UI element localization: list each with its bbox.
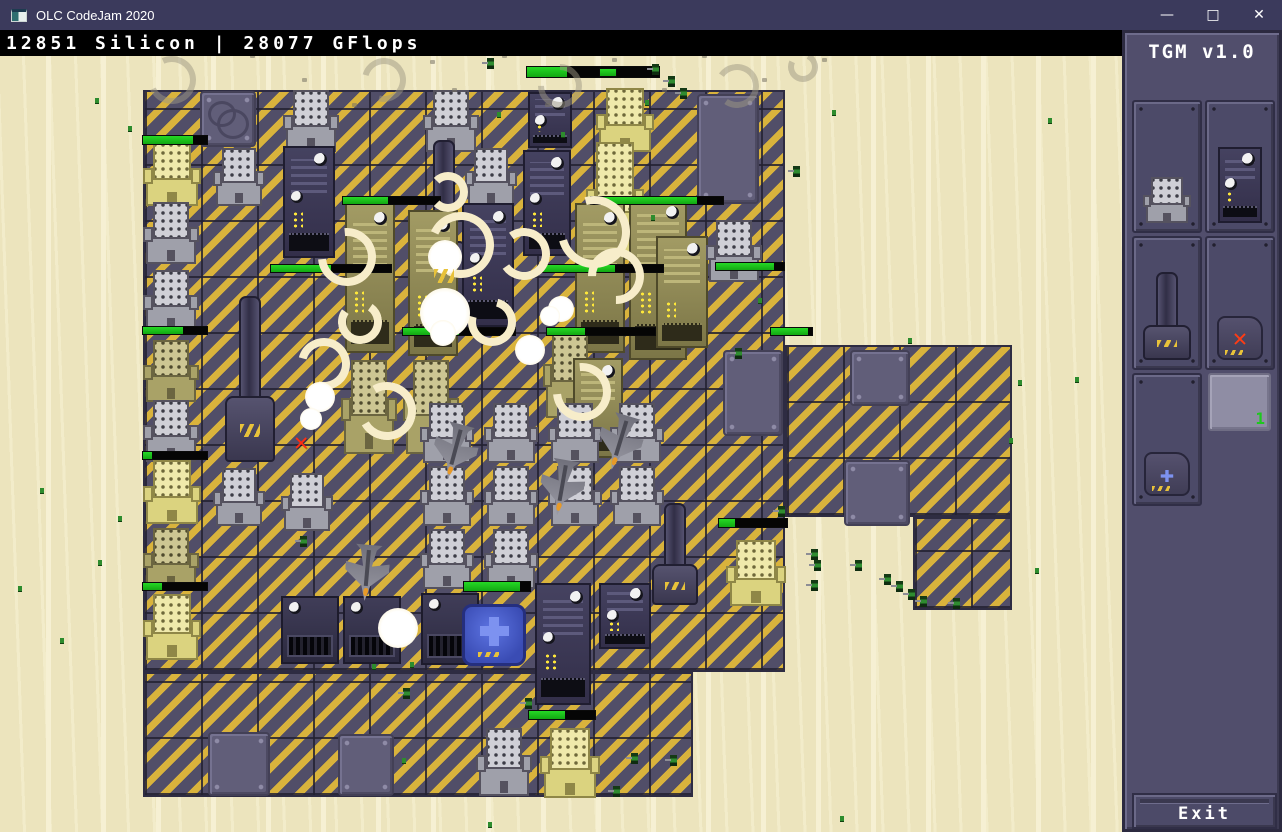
- building-factory-yellow[interactable]: [726, 540, 786, 606]
- building-factory-gray[interactable]: [465, 148, 517, 206]
- building-turret[interactable]: [651, 503, 699, 605]
- building-factory-yellow[interactable]: [143, 460, 201, 524]
- app-icon: [11, 9, 27, 22]
- game-scene[interactable]: ✕: [0, 56, 1122, 832]
- slot-factory-building[interactable]: [1132, 100, 1202, 233]
- debris-green: [98, 560, 102, 565]
- server-icon: [1218, 147, 1262, 223]
- building-server[interactable]: [599, 583, 651, 649]
- soldier-sprite: [778, 506, 785, 517]
- resource-statusbar: 12851 Silicon | 28077 GFlops: [0, 30, 1122, 56]
- building-factory-gray[interactable]: [476, 728, 532, 796]
- health-bar: [143, 452, 207, 459]
- debris-green: [832, 110, 836, 115]
- exit-button[interactable]: Exit: [1132, 793, 1277, 829]
- debris-green: [40, 488, 44, 493]
- soldier-sprite: [793, 166, 800, 177]
- soldier-sprite: [670, 755, 677, 766]
- soldier-sprite: [613, 786, 620, 797]
- smoke-ring: [428, 172, 468, 212]
- building-factory-yellow[interactable]: [143, 594, 201, 660]
- health-bar: [343, 197, 440, 204]
- debris-green: [128, 126, 132, 131]
- building-factory-gray[interactable]: [213, 468, 265, 526]
- debris-green: [1075, 377, 1079, 382]
- building-factory-olive[interactable]: [143, 340, 199, 402]
- debris-gray: [302, 78, 307, 82]
- debris-green: [651, 215, 655, 220]
- debris-green: [488, 822, 492, 827]
- building-vent-machine[interactable]: [281, 596, 339, 664]
- slot-empty[interactable]: 1: [1208, 373, 1271, 431]
- metal-plate[interactable]: [338, 734, 394, 796]
- slot-demolish-tool[interactable]: ✕: [1205, 236, 1275, 370]
- soldier-sprite: [953, 598, 960, 609]
- metal-plate[interactable]: [723, 350, 783, 436]
- window-titlebar[interactable]: OLC CodeJam 2020 — □ ✕: [0, 0, 1282, 30]
- health-bar-fill: [143, 583, 162, 590]
- debris-gray: [822, 58, 827, 62]
- debris-gray: [612, 58, 617, 62]
- soldier-sprite: [735, 348, 742, 359]
- health-bar-fill: [719, 519, 735, 527]
- slot-turret-building[interactable]: [1132, 236, 1202, 370]
- building-factory-yellow[interactable]: [143, 142, 201, 206]
- soldier-sprite: [811, 580, 818, 591]
- building-factory-gray[interactable]: [281, 473, 333, 531]
- health-bar: [529, 711, 595, 719]
- building-factory-gray[interactable]: [283, 90, 339, 152]
- debris-gray: [452, 88, 457, 92]
- close-button[interactable]: ✕: [1236, 0, 1282, 30]
- debris-green: [1048, 118, 1052, 123]
- explosion-puff: [300, 408, 322, 430]
- health-bar-fill: [771, 328, 808, 335]
- metal-plate[interactable]: [697, 94, 759, 204]
- turret-icon: [1142, 272, 1192, 360]
- debris-green: [410, 662, 414, 667]
- resource-counters: 12851 Silicon | 28077 GFlops: [6, 33, 421, 54]
- debris-green: [1009, 438, 1013, 443]
- health-bar: [143, 583, 207, 590]
- building-factory-gray[interactable]: [420, 529, 474, 589]
- debris-green: [95, 98, 99, 103]
- health-bar: [771, 328, 812, 335]
- building-turret[interactable]: [224, 296, 276, 462]
- debris-green: [908, 338, 912, 343]
- slot-repair-tool[interactable]: ✚: [1132, 373, 1202, 506]
- debris-green: [1018, 380, 1022, 385]
- soldier-sprite: [487, 58, 494, 69]
- soldier-sprite: [652, 64, 659, 75]
- building-factory-gray[interactable]: [484, 403, 538, 463]
- debris-green: [1035, 568, 1039, 573]
- soldier-sprite: [855, 560, 862, 571]
- health-bar: [716, 263, 784, 270]
- demolish-icon: ✕: [1217, 316, 1263, 360]
- app-window: OLC CodeJam 2020 — □ ✕ 12851 Silicon | 2…: [0, 0, 1282, 832]
- soldier-sprite: [908, 589, 915, 600]
- debris-green: [402, 758, 406, 763]
- building-factory-gray[interactable]: [143, 270, 199, 332]
- health-bar-fill: [547, 328, 585, 335]
- building-factory-olive[interactable]: [143, 528, 199, 590]
- soldier-sprite: [525, 698, 532, 709]
- debris-green: [645, 100, 649, 105]
- demolish-marker: ✕: [294, 430, 308, 454]
- debris-green: [758, 298, 762, 303]
- building-factory-yellow[interactable]: [540, 728, 600, 798]
- build-menu-panel: TGM v1.0 ✕ ✚ 1: [1122, 30, 1282, 832]
- soldier-sprite: [300, 536, 307, 547]
- explosion-puff: [515, 335, 545, 365]
- game-viewport[interactable]: ✕: [0, 56, 1122, 832]
- explosion-puff: [430, 320, 456, 346]
- minimize-button[interactable]: —: [1144, 0, 1190, 30]
- debris-gray: [430, 60, 435, 64]
- slot-server-building[interactable]: [1205, 100, 1275, 233]
- metal-plate[interactable]: [844, 460, 910, 526]
- health-bar: [719, 519, 787, 527]
- explosion-puff: [378, 608, 418, 648]
- health-bar: [464, 582, 530, 591]
- health-bar: [143, 136, 207, 144]
- building-factory-gray[interactable]: [706, 220, 762, 282]
- building-factory-gray[interactable]: [420, 466, 474, 526]
- soldier-sprite: [884, 574, 891, 585]
- repair-icon: ✚: [1144, 452, 1190, 496]
- health-bar-fill: [529, 711, 565, 719]
- debris-green: [840, 816, 844, 821]
- health-bar: [143, 327, 207, 334]
- debris-gray: [502, 56, 507, 58]
- soldier-sprite: [668, 76, 675, 87]
- metal-plate[interactable]: [850, 350, 910, 406]
- maximize-button[interactable]: □: [1190, 0, 1236, 30]
- window-title: OLC CodeJam 2020: [36, 8, 155, 23]
- soldier-sprite: [631, 753, 638, 764]
- health-bar-fill: [464, 582, 520, 591]
- soldier-sprite: [403, 688, 410, 699]
- slot-count-badge: 1: [1255, 409, 1265, 428]
- building-factory-gray[interactable]: [213, 148, 265, 206]
- soldier-sprite: [680, 88, 687, 99]
- panel-title: TGM v1.0: [1125, 41, 1279, 63]
- floor-plate[interactable]: [913, 517, 1012, 610]
- debris-gray: [762, 78, 767, 82]
- explosion-puff: [540, 306, 560, 326]
- building-repair-station[interactable]: [462, 604, 526, 666]
- health-bar-fill: [143, 452, 152, 459]
- health-bar: [600, 69, 616, 76]
- debris-gray: [702, 56, 707, 58]
- building-factory-gray[interactable]: [484, 466, 538, 526]
- metal-plate[interactable]: [200, 91, 256, 147]
- debris-green: [118, 516, 122, 521]
- soldier-sprite: [811, 549, 818, 560]
- health-bar: [547, 328, 655, 335]
- soldier-sprite: [920, 596, 927, 607]
- building-factory-gray[interactable]: [484, 529, 538, 589]
- debris-gray: [662, 88, 667, 92]
- soldier-sprite: [814, 560, 821, 571]
- debris-green: [60, 638, 64, 643]
- metal-plate[interactable]: [208, 732, 270, 796]
- debris-green: [497, 112, 501, 117]
- health-bar-fill: [716, 263, 774, 270]
- debris-green: [18, 586, 22, 591]
- building-server[interactable]: [535, 583, 591, 705]
- health-bar-fill: [600, 69, 616, 76]
- smoke-ring-gray: [784, 56, 822, 86]
- debris-gray: [352, 103, 357, 107]
- building-factory-gray[interactable]: [143, 202, 199, 264]
- factory-icon: [1143, 177, 1191, 223]
- building-server-olive[interactable]: [656, 236, 708, 348]
- health-bar-fill: [343, 197, 388, 204]
- debris-gray: [545, 103, 550, 107]
- debris-gray: [250, 56, 255, 58]
- health-bar-fill: [143, 327, 183, 334]
- debris-green: [372, 664, 376, 669]
- debris-green: [561, 132, 565, 137]
- soldier-sprite: [896, 581, 903, 592]
- health-bar-fill: [143, 136, 193, 144]
